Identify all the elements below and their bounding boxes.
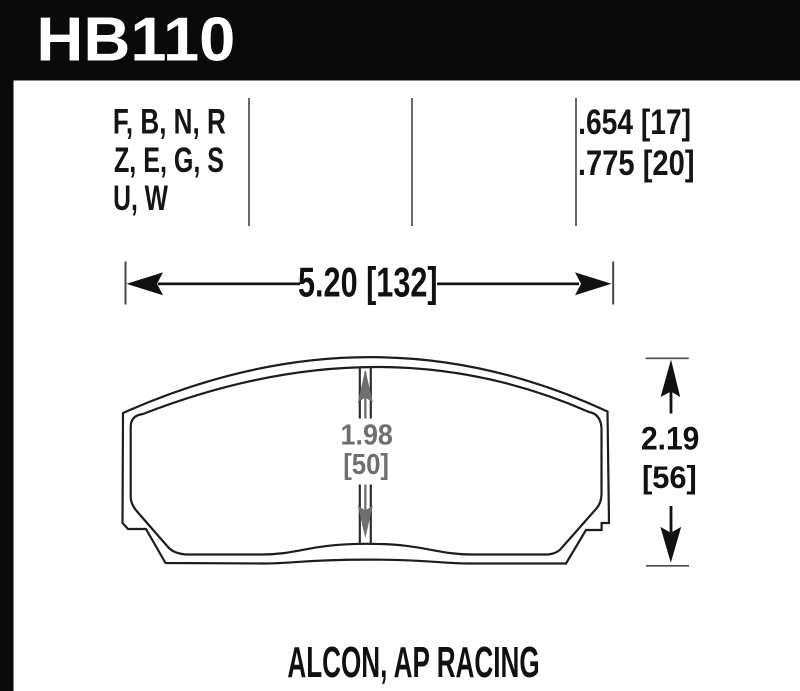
svg-text:1.98: 1.98 [340,419,392,451]
svg-text:.654 [17]: .654 [17] [578,102,691,142]
svg-text:Z, E, G, S: Z, E, G, S [114,140,224,180]
svg-text:[56]: [56] [642,460,697,495]
svg-text:ALCON, AP RACING: ALCON, AP RACING [287,638,539,687]
svg-text:5.20 [132]: 5.20 [132] [298,259,438,306]
svg-text:HB110: HB110 [36,3,235,74]
svg-text:F, B, N, R: F, B, N, R [113,102,226,142]
svg-text:.775 [20]: .775 [20] [578,143,695,182]
svg-text:U, W: U, W [113,179,168,218]
svg-text:[50]: [50] [343,448,389,481]
svg-text:2.19: 2.19 [641,420,699,456]
